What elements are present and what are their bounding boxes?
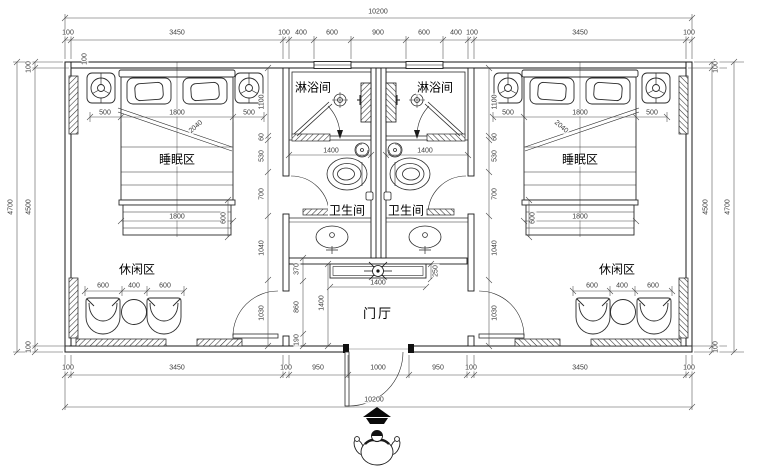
dim-label: 1400 [319, 294, 326, 312]
dim-label: 1400 [369, 280, 387, 287]
dim-label: 1400 [416, 148, 434, 155]
dim-label: 100 [82, 52, 89, 66]
dim-label: 60 [492, 132, 499, 142]
room-label-sleep-left: 睡眠区 [158, 153, 196, 166]
entrance-arrow-icon [363, 407, 391, 424]
dim-right-inner: 4500 [703, 198, 710, 216]
dim-label: 1800 [168, 110, 186, 117]
dim-label: 500 [242, 110, 256, 117]
dim-label: 3450 [571, 30, 589, 37]
dim-left-inner: 4500 [26, 198, 33, 216]
dim-label: 1100 [492, 93, 499, 110]
dim-label: 100 [465, 30, 479, 37]
room-label-sleep-right: 睡眠区 [561, 153, 599, 166]
dim-label: 100 [713, 60, 720, 74]
dim-label: 100 [277, 30, 291, 37]
room-label-leisure-left: 休闲区 [118, 263, 156, 276]
dim-label: 1030 [259, 304, 266, 322]
hall-top-wall [289, 258, 467, 264]
dim-label: 3450 [168, 365, 186, 372]
dim-label: 400 [615, 283, 629, 290]
dim-label: 100 [61, 30, 75, 37]
dim-bottom-total: 10200 [363, 397, 384, 404]
dim-label: 3450 [571, 365, 589, 372]
dim-label: 600 [417, 30, 431, 37]
dim-label: 1040 [492, 239, 499, 257]
dim-label: 500 [98, 110, 112, 117]
dim-label: 1030 [492, 304, 499, 322]
dim-label: 1400 [322, 148, 340, 155]
dim-label: 370 [294, 262, 301, 276]
dim-label: 500 [501, 110, 515, 117]
dim-label: 1040 [259, 239, 266, 257]
dim-label: 100 [682, 365, 696, 372]
room-label-wc-right: 卫生间 [387, 204, 425, 217]
dim-label: 950 [311, 365, 325, 372]
person-icon [352, 431, 402, 466]
dim-label: 3450 [168, 30, 186, 37]
dim-label: 190 [294, 333, 301, 347]
dim-label: 700 [259, 187, 266, 201]
dim-label: 700 [492, 187, 499, 201]
room-label-leisure-right: 休闲区 [598, 263, 636, 276]
dim-label: 60 [259, 132, 266, 142]
dim-label: 600 [530, 211, 537, 225]
floor-plan: 10200 100 3450 100 400 600 900 600 400 1… [0, 0, 760, 473]
dim-label: 950 [431, 365, 445, 372]
dim-label: 100 [464, 365, 478, 372]
dim-label: 600 [646, 283, 660, 290]
dim-label: 100 [61, 365, 75, 372]
dim-left-outer: 4700 [8, 198, 15, 216]
dim-label: 1000 [369, 365, 387, 372]
room-label-shower-right: 淋浴间 [416, 81, 454, 94]
dim-top-total: 10200 [367, 9, 388, 16]
dim-label: 100 [279, 365, 293, 372]
dim-label: 600 [158, 283, 172, 290]
room-label-hall: 门厅 [362, 307, 394, 321]
dim-label: 500 [645, 110, 659, 117]
dim-label: 600 [585, 283, 599, 290]
dim-label: 530 [259, 149, 266, 163]
dim-label: 400 [294, 30, 308, 37]
dim-label: 100 [682, 30, 696, 37]
dim-label: 600 [221, 211, 228, 225]
dim-label: 400 [449, 30, 463, 37]
dim-label: 100 [713, 340, 720, 354]
dim-label: 1800 [168, 214, 186, 221]
dim-label: 530 [492, 149, 499, 163]
room-label-wc-left: 卫生间 [328, 204, 366, 217]
dim-label: 600 [96, 283, 110, 290]
dim-label: 600 [325, 30, 339, 37]
dim-label: 400 [127, 283, 141, 290]
dim-label: 1100 [259, 93, 266, 110]
dim-label: 100 [26, 60, 33, 74]
dim-label: 860 [294, 300, 301, 314]
dim-label: 1800 [571, 110, 589, 117]
dim-label: 250 [433, 264, 440, 278]
dim-label: 100 [26, 340, 33, 354]
dim-right-outer: 4700 [725, 198, 732, 216]
room-label-shower-left: 淋浴间 [294, 81, 332, 94]
dim-label: 1800 [571, 214, 589, 221]
dim-label: 900 [371, 30, 385, 37]
